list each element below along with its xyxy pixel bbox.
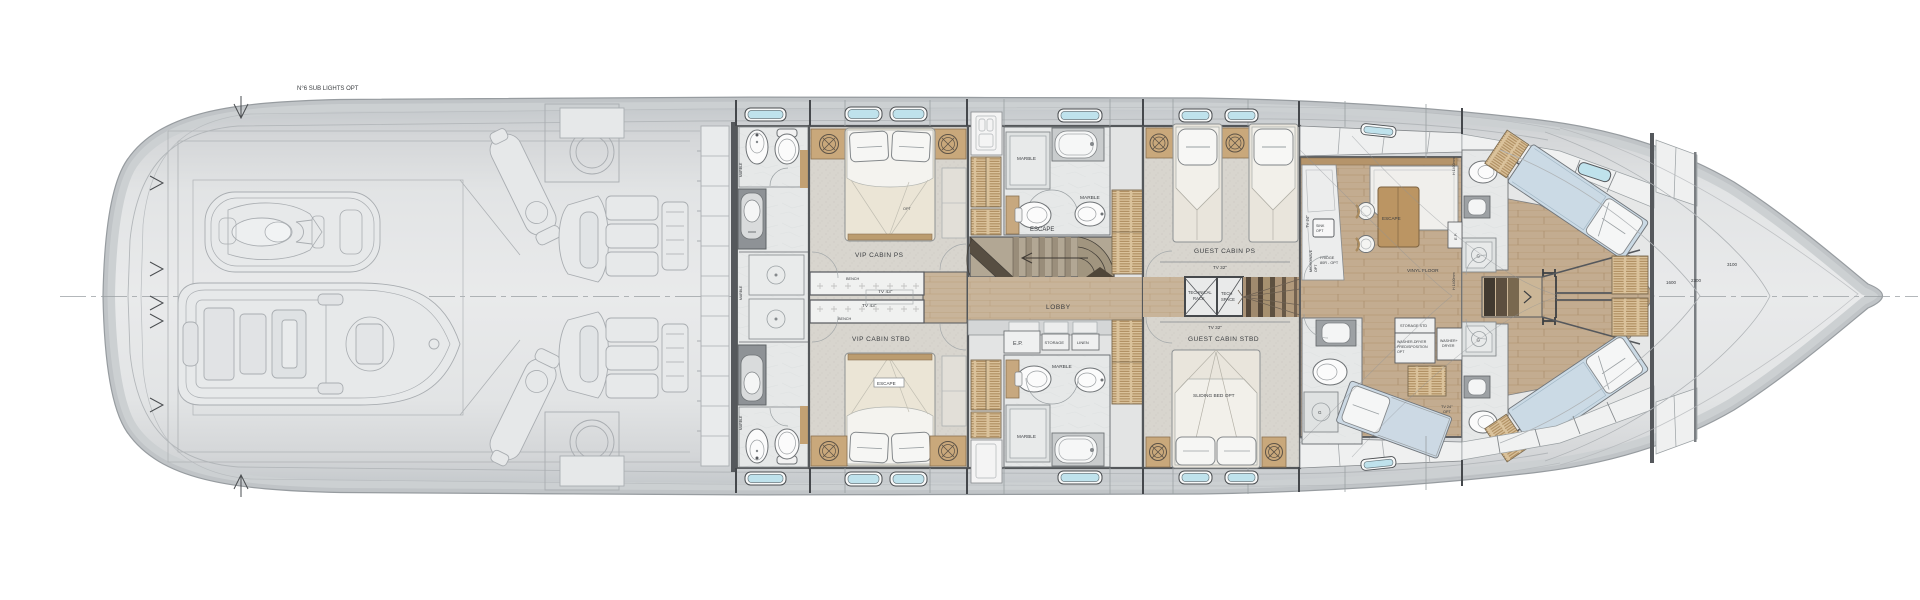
- svg-text:DRYER: DRYER: [1442, 344, 1455, 348]
- svg-text:MARBLE: MARBLE: [739, 162, 743, 177]
- svg-text:GUEST CABIN STBD: GUEST CABIN STBD: [1188, 336, 1259, 343]
- svg-text:LOBBY: LOBBY: [1046, 304, 1071, 311]
- svg-text:OPT: OPT: [1443, 410, 1451, 414]
- svg-text:SPACE: SPACE: [1221, 297, 1235, 302]
- svg-text:TECHNICAL: TECHNICAL: [1188, 290, 1212, 295]
- svg-text:RACK: RACK: [1193, 296, 1205, 301]
- svg-text:VIP CABIN STBD: VIP CABIN STBD: [852, 336, 910, 343]
- svg-text:2300: 2300: [1691, 278, 1702, 283]
- svg-text:BENCH: BENCH: [846, 277, 860, 281]
- svg-text:TV 24": TV 24": [1305, 215, 1310, 228]
- svg-text:OPT: OPT: [1314, 264, 1318, 272]
- svg-text:BENCH: BENCH: [838, 317, 852, 321]
- svg-text:STORAGE: STORAGE: [1045, 340, 1065, 345]
- svg-text:3100: 3100: [1727, 262, 1738, 267]
- svg-text:ESCAPE: ESCAPE: [1030, 227, 1054, 233]
- svg-text:VIP CABIN PS: VIP CABIN PS: [855, 252, 904, 259]
- svg-text:WASHER+: WASHER+: [1440, 339, 1458, 343]
- svg-text:LINEN: LINEN: [1077, 340, 1089, 345]
- svg-text:MARBLE: MARBLE: [739, 285, 743, 300]
- svg-text:STORAGE STD: STORAGE STD: [1400, 324, 1427, 328]
- svg-text:MARBLE: MARBLE: [1017, 434, 1036, 439]
- svg-text:OPT: OPT: [903, 207, 911, 211]
- svg-text:OPT: OPT: [1397, 350, 1405, 354]
- svg-text:MARBLE: MARBLE: [1017, 156, 1036, 161]
- svg-text:G: G: [1318, 410, 1322, 415]
- svg-text:E.P.: E.P.: [1013, 341, 1023, 347]
- svg-text:MARBLE: MARBLE: [739, 415, 743, 430]
- svg-text:ESCAPE: ESCAPE: [877, 381, 896, 386]
- svg-text:MARBLE: MARBLE: [1080, 195, 1100, 201]
- svg-text:80R - OPT: 80R - OPT: [1320, 261, 1339, 265]
- svg-text:SINK: SINK: [1316, 224, 1325, 228]
- svg-text:SLIDING BED OPT: SLIDING BED OPT: [1193, 393, 1235, 399]
- svg-text:TV 32": TV 32": [1213, 265, 1227, 270]
- svg-text:ESCAPE: ESCAPE: [1382, 216, 1401, 221]
- svg-text:MARBLE: MARBLE: [1052, 364, 1072, 370]
- svg-text:H 1400mm: H 1400mm: [1452, 157, 1456, 175]
- svg-text:N°6 SUB LIGHTS OPT: N°6 SUB LIGHTS OPT: [297, 86, 359, 92]
- svg-text:H 1400mm: H 1400mm: [1452, 272, 1456, 290]
- svg-text:TV 24": TV 24": [1441, 405, 1453, 409]
- svg-text:1600: 1600: [1666, 280, 1677, 285]
- svg-text:OPT: OPT: [1316, 229, 1324, 233]
- svg-text:TECH: TECH: [1221, 291, 1232, 296]
- svg-text:GUEST CABIN PS: GUEST CABIN PS: [1194, 248, 1256, 255]
- svg-text:MICROWAVE: MICROWAVE: [1309, 249, 1313, 272]
- svg-text:TV 32": TV 32": [1208, 325, 1222, 330]
- svg-text:PREDISPOSITION: PREDISPOSITION: [1397, 345, 1428, 349]
